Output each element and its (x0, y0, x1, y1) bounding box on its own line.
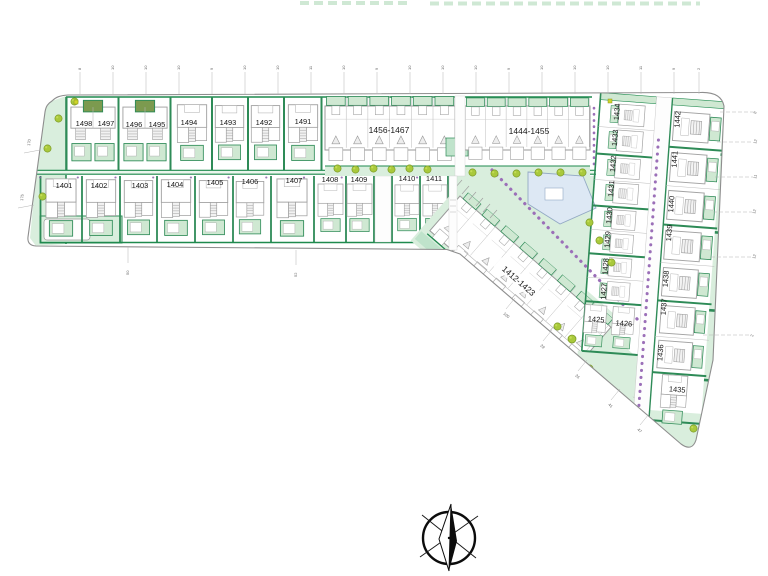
plot-label-1404: 1404 (167, 180, 184, 189)
plot-label-1439: 1439 (664, 224, 674, 241)
plot-label-1438: 1438 (661, 270, 671, 287)
house-1493 (215, 106, 243, 160)
svg-text:10: 10 (539, 65, 544, 70)
plot-label-1497: 1497 (98, 119, 115, 128)
site-interior: 1412-1423 (30, 86, 733, 452)
shrub-row-top (430, 86, 452, 90)
plot-label-1405: 1405 (207, 178, 224, 187)
svg-text:10: 10 (440, 65, 445, 70)
svg-text:10: 10 (275, 65, 280, 70)
utility-box (608, 99, 612, 103)
plot-label-1430: 1430 (604, 207, 614, 224)
house-1409 (347, 184, 372, 232)
plot-label-1498: 1498 (76, 119, 93, 128)
block-1444-1455 (455, 96, 590, 176)
plot-label-1436: 1436 (655, 344, 665, 361)
house-1494 (177, 105, 206, 161)
plot-label-1492: 1492 (256, 118, 273, 127)
svg-text:10: 10 (341, 65, 346, 70)
plot-label-1425: 1425 (587, 314, 604, 324)
block-label-1456-1467: 1456-1467 (369, 125, 410, 135)
svg-text:10: 10 (407, 65, 412, 70)
svg-text:52: 52 (293, 272, 298, 277)
svg-text:10: 10 (242, 65, 247, 70)
plot-label-1407: 1407 (286, 176, 303, 185)
svg-text:10: 10 (143, 65, 148, 70)
svg-text:11: 11 (752, 173, 758, 179)
plot-label-1434: 1434 (612, 103, 622, 120)
svg-text:50: 50 (125, 270, 130, 275)
plot-label-1493: 1493 (220, 118, 237, 127)
plot-label-1410: 1410 (399, 174, 416, 183)
svg-text:11: 11 (308, 65, 313, 70)
svg-text:10: 10 (176, 65, 181, 70)
svg-text:170: 170 (26, 138, 32, 146)
svg-text:100: 100 (502, 311, 511, 320)
house-1492 (251, 106, 279, 160)
house-pair-1496-1495 (123, 100, 167, 160)
plot-label-1402: 1402 (91, 181, 108, 190)
svg-text:41: 41 (607, 402, 614, 409)
plot-label-1432: 1432 (608, 155, 618, 172)
plot-label-1440: 1440 (666, 195, 676, 212)
plot-label-1411: 1411 (426, 174, 442, 183)
svg-text:12: 12 (751, 253, 757, 259)
plot-label-1403: 1403 (132, 181, 149, 190)
dimension-ticks-top: 8 10 10 10 9 10 10 11 10 9 10 10 10 9 10… (77, 65, 701, 94)
svg-text:9: 9 (374, 67, 379, 70)
svg-text:10: 10 (473, 65, 478, 70)
plot-label-1435: 1435 (669, 384, 686, 394)
svg-text:12: 12 (752, 138, 758, 144)
plot-label-1442: 1442 (672, 111, 682, 128)
svg-text:2: 2 (696, 67, 701, 70)
utility-box (74, 100, 78, 104)
plot-label-1494: 1494 (181, 118, 198, 127)
plot-label-1406: 1406 (242, 177, 259, 186)
svg-text:47: 47 (636, 427, 643, 434)
plot-label-1431: 1431 (606, 180, 616, 197)
north-arrow-icon (420, 504, 478, 571)
plot-label-1429: 1429 (602, 231, 612, 248)
block-1456-1467 (325, 96, 468, 176)
plot-label-1491: 1491 (295, 117, 312, 126)
house-1407 (277, 179, 307, 236)
svg-text:10: 10 (605, 65, 610, 70)
site-plan: 1412-1423 (0, 0, 768, 576)
svg-text:10: 10 (110, 65, 115, 70)
svg-text:26: 26 (574, 373, 581, 380)
house-1410 (395, 185, 419, 231)
svg-text:29: 29 (539, 343, 546, 350)
plot-label-1437: 1437 (659, 298, 669, 315)
plot-label-1408: 1408 (322, 175, 339, 184)
svg-text:12: 12 (751, 208, 757, 214)
svg-text:175: 175 (19, 193, 25, 201)
plot-label-1496: 1496 (126, 120, 143, 129)
svg-text:8: 8 (77, 67, 82, 70)
site-plan-drawing: 1412-1423 (0, 0, 768, 576)
plot-label-1495: 1495 (149, 120, 166, 129)
svg-text:11: 11 (638, 65, 643, 70)
plot-label-1409: 1409 (351, 175, 368, 184)
plot-label-1401: 1401 (56, 181, 73, 190)
svg-text:9: 9 (506, 67, 511, 70)
house-1406 (236, 181, 264, 233)
plot-label-1441: 1441 (669, 151, 679, 168)
side-path (449, 176, 457, 250)
svg-text:9: 9 (671, 67, 676, 70)
house-1408 (318, 184, 343, 232)
house-1491 (288, 105, 317, 161)
house-1405 (199, 181, 227, 235)
svg-text:2: 2 (749, 333, 755, 337)
plot-label-1427: 1427 (599, 283, 609, 300)
svg-text:10: 10 (572, 65, 577, 70)
block-label-1444-1455: 1444-1455 (509, 126, 550, 136)
plot-label-1433: 1433 (610, 129, 620, 146)
svg-text:9: 9 (209, 67, 214, 70)
svg-text:8: 8 (752, 110, 758, 114)
plot-label-1426: 1426 (615, 318, 632, 328)
house-pair-1498-1497 (71, 100, 115, 160)
right-leg: 1434 1433 1432 1431 1430 1429 1428 1427 … (571, 92, 733, 452)
street-green-strip (300, 3, 700, 4)
